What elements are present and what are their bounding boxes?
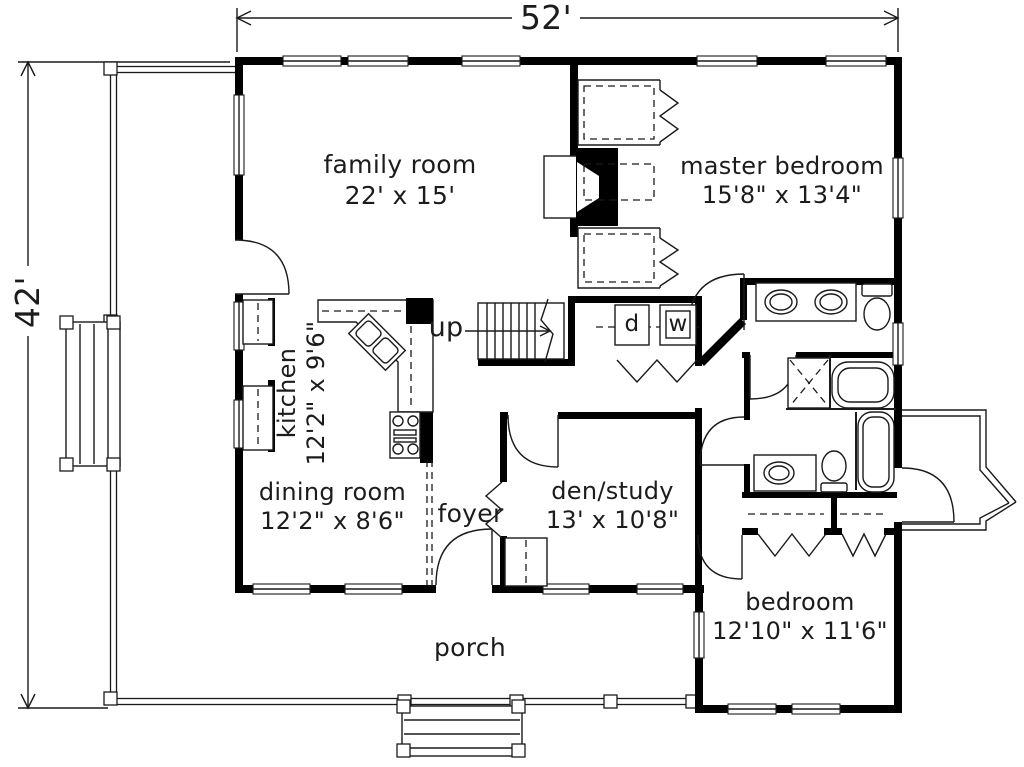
kitchen-fixtures <box>243 298 433 586</box>
fireplace <box>544 148 618 226</box>
front-steps <box>397 700 525 757</box>
bedroom-closets <box>748 514 888 556</box>
window <box>345 584 402 594</box>
door-family-porch <box>235 240 289 294</box>
window <box>253 584 310 594</box>
room-name: kitchen <box>273 303 302 483</box>
door-hall-bath <box>700 417 744 465</box>
window <box>826 56 886 66</box>
room-size: 12'10" x 11'6" <box>700 617 900 646</box>
bifold-door <box>660 90 678 142</box>
door-side-porch <box>902 468 954 522</box>
staircase <box>465 299 564 362</box>
room-name: family room <box>290 150 510 181</box>
room-size: 12'2" x 8'6" <box>235 507 430 536</box>
window <box>728 704 776 714</box>
room-size: 13' x 10'8" <box>520 506 705 535</box>
room-label-dining-room: dining room 12'2" x 8'6" <box>235 478 430 537</box>
window <box>637 584 683 594</box>
washer-label: w <box>660 310 696 338</box>
pantry-cabinets <box>243 300 273 450</box>
window <box>792 704 840 714</box>
bifold-door <box>617 360 697 382</box>
door-den <box>508 415 558 467</box>
room-name: dining room <box>235 478 430 507</box>
bifold-door <box>758 534 826 556</box>
room-label-master-bedroom: master bedroom 15'8" x 13'4" <box>667 152 897 211</box>
overall-width-dimension: 52' <box>512 0 580 38</box>
hall-bath-fixtures <box>754 412 894 492</box>
window <box>462 56 520 66</box>
room-label-kitchen: kitchen 12'2" x 9'6" <box>273 303 337 483</box>
room-label-family-room: family room 22' x 15' <box>290 150 510 211</box>
stove-icon <box>390 412 420 458</box>
window <box>348 56 408 66</box>
floor-plan: 52' 42' family room 22' x 15' master bed… <box>0 0 1024 767</box>
window <box>543 584 589 594</box>
dryer-label: d <box>615 310 649 338</box>
room-name: master bedroom <box>667 152 897 181</box>
room-label-bedroom: bedroom 12'10" x 11'6" <box>700 588 900 647</box>
room-size: 15'8" x 13'4" <box>667 181 897 210</box>
room-label-porch: porch <box>420 633 520 664</box>
bifold-door <box>842 534 886 556</box>
toilet-icon <box>822 451 846 481</box>
window <box>697 56 757 66</box>
room-label-den-study: den/study 13' x 10'8" <box>520 477 705 536</box>
bifold-door <box>660 238 678 286</box>
room-size: 12'2" x 9'6" <box>302 303 331 483</box>
window <box>893 323 903 365</box>
room-name: bedroom <box>700 588 900 617</box>
door-front <box>436 529 492 585</box>
master-bath-fixtures <box>756 283 896 409</box>
room-label-foyer: foyer <box>428 499 513 530</box>
door-bedroom <box>698 535 742 579</box>
room-name: den/study <box>520 477 705 506</box>
overall-height-dimension: 42' <box>8 262 48 342</box>
stairs-up-label: up <box>424 312 468 345</box>
side-steps <box>60 316 120 471</box>
room-size: 22' x 15' <box>290 181 510 212</box>
window <box>283 56 341 66</box>
window <box>234 95 244 175</box>
toilet-icon <box>862 284 892 296</box>
